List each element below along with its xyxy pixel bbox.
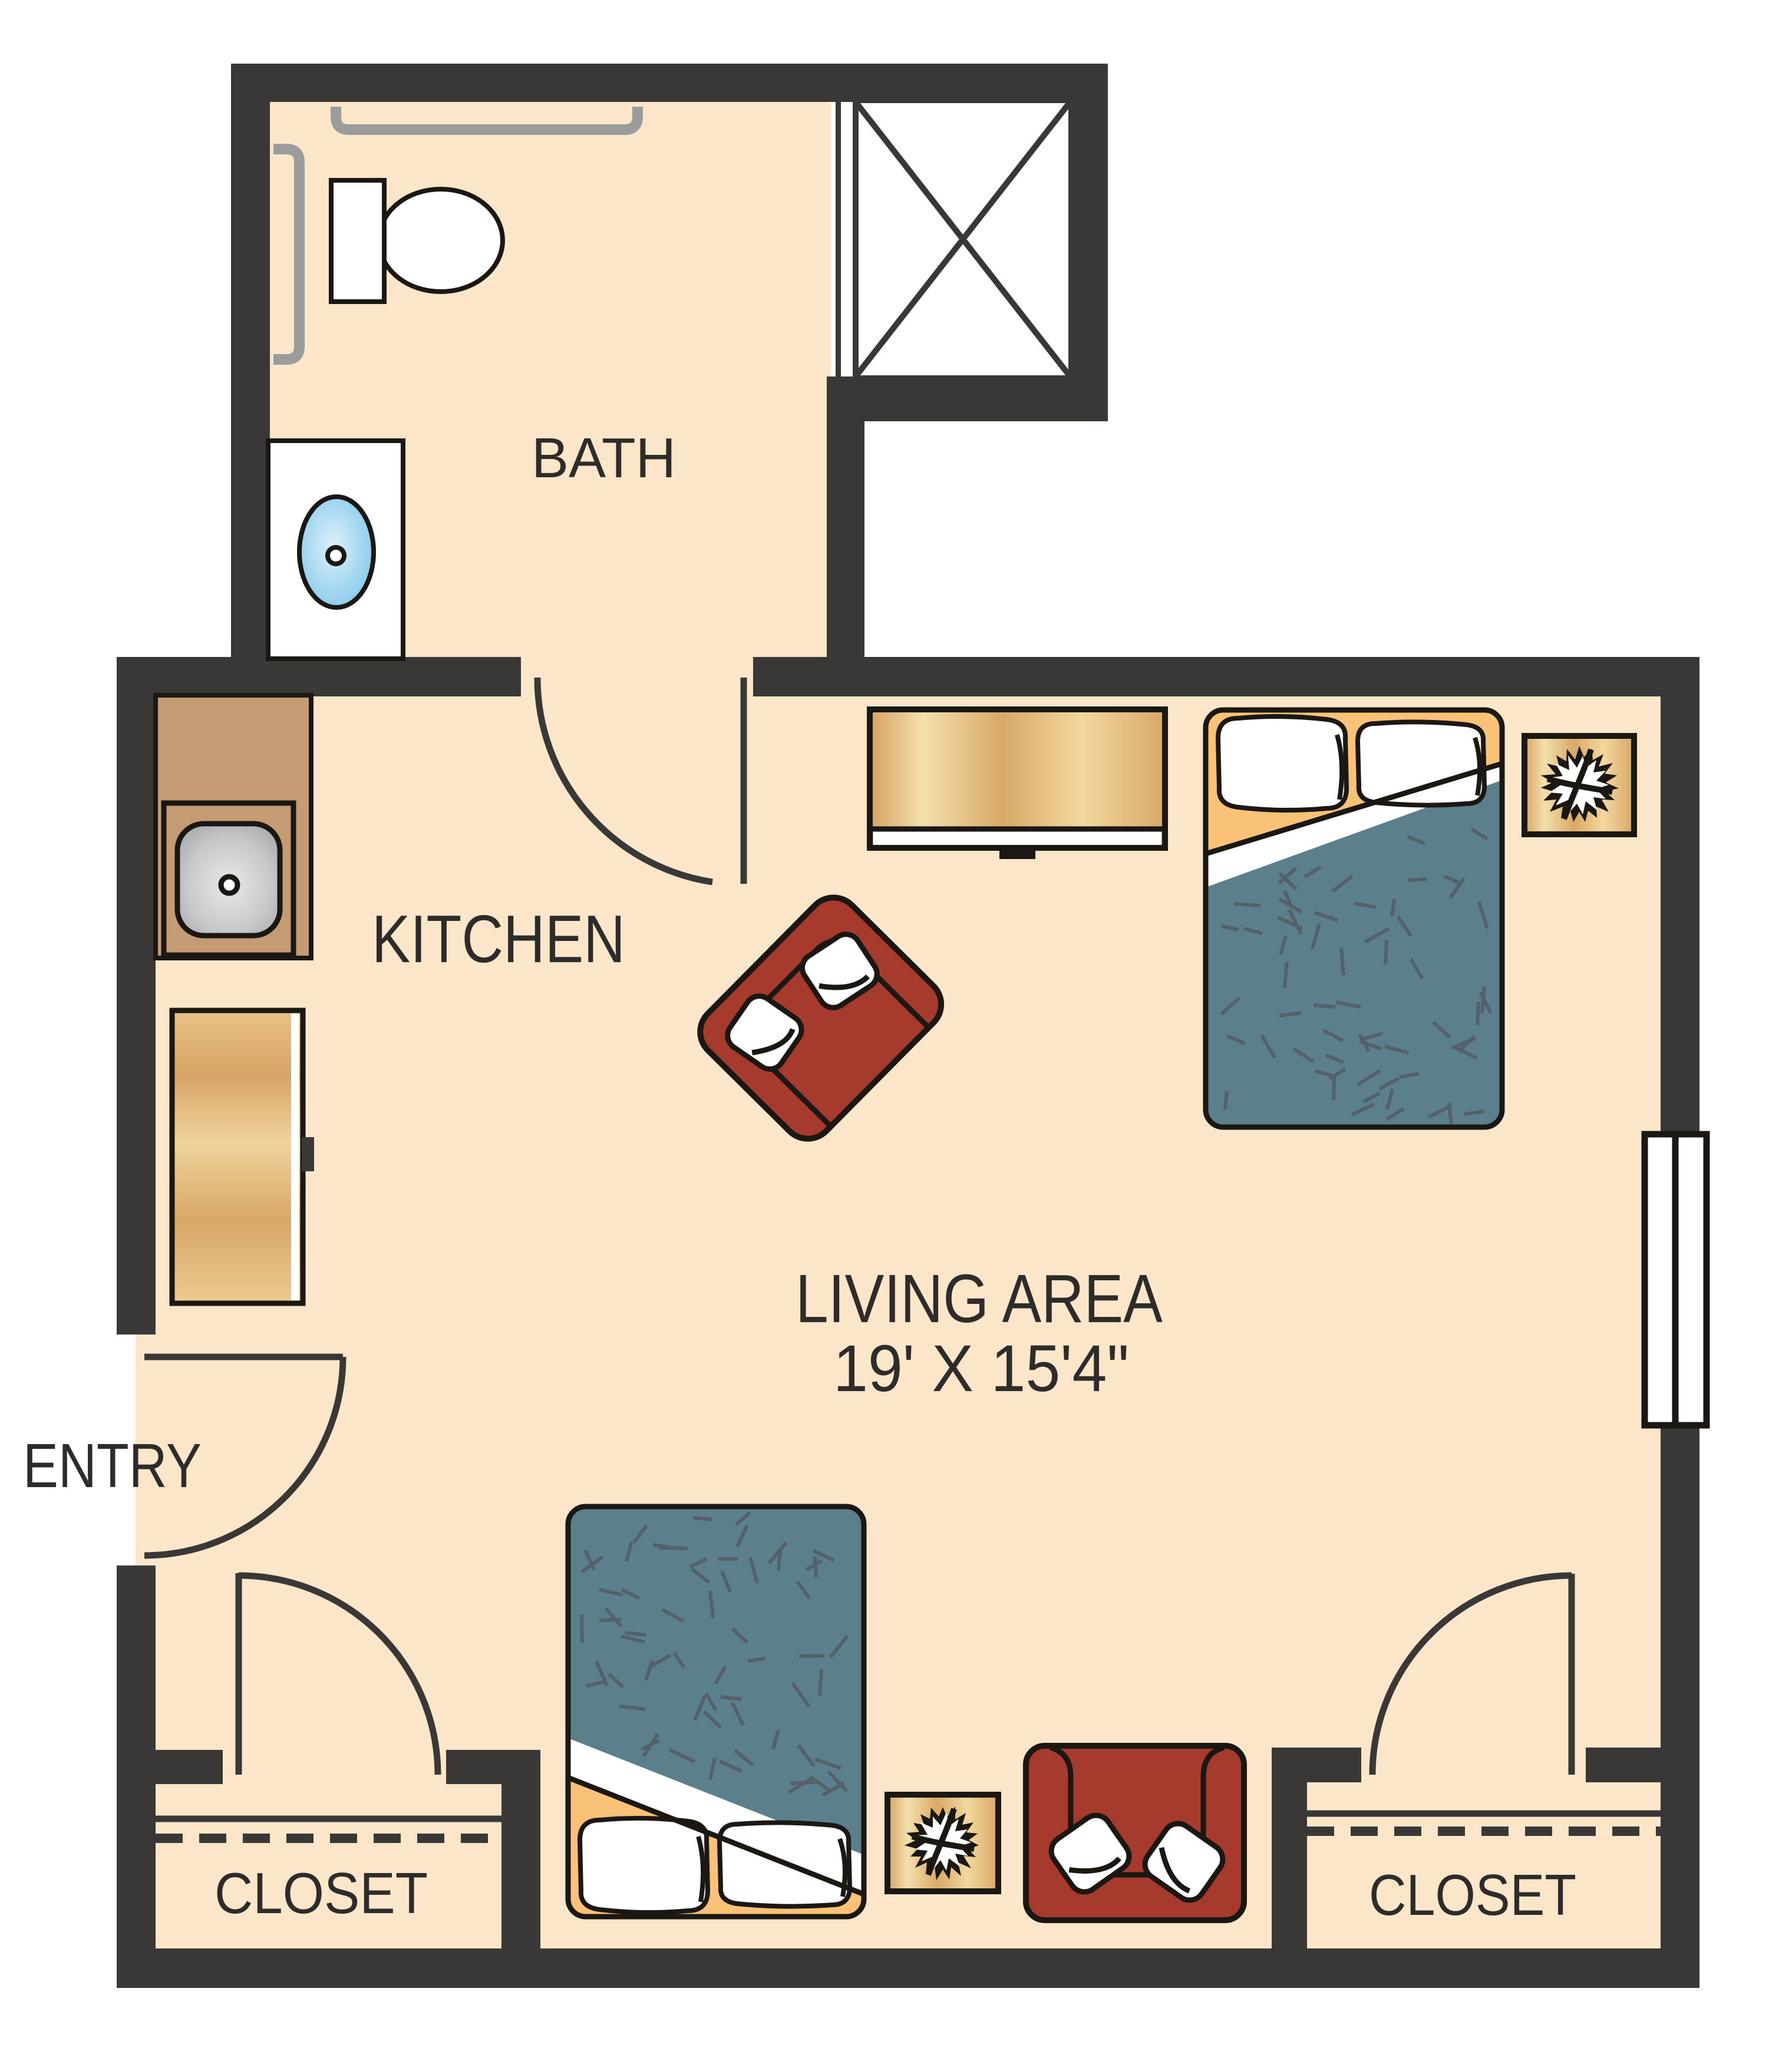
svg-text:KITCHEN: KITCHEN — [372, 902, 625, 977]
svg-text:ENTRY: ENTRY — [23, 1431, 202, 1501]
svg-text:CLOSET: CLOSET — [1369, 1862, 1576, 1927]
svg-text:BATH: BATH — [532, 427, 676, 490]
svg-text:CLOSET: CLOSET — [214, 1861, 428, 1925]
svg-text:LIVING AREA: LIVING AREA — [796, 1260, 1163, 1337]
svg-text:19' X 15'4": 19' X 15'4" — [833, 1332, 1129, 1405]
